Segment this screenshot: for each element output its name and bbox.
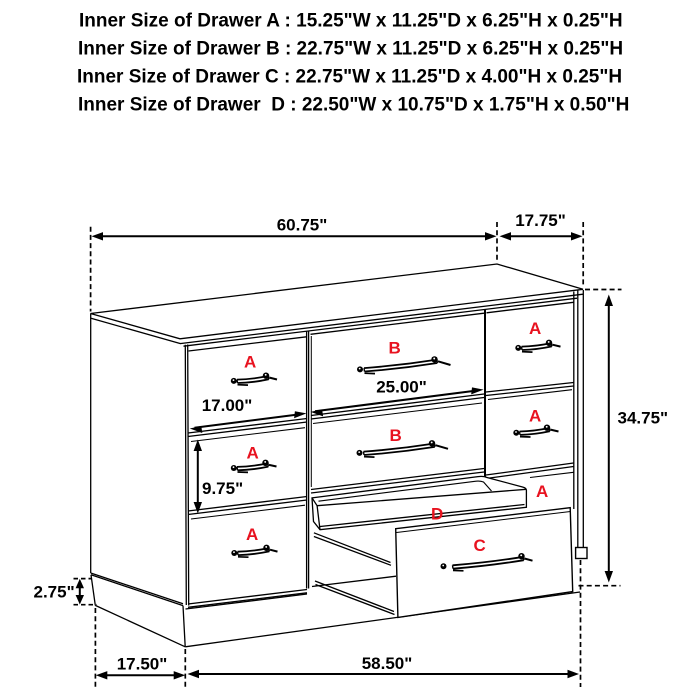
- svg-text:Inner Size of Drawer A : 15.25: Inner Size of Drawer A : 15.25"W x 11.25…: [79, 11, 623, 32]
- svg-text:17.00": 17.00": [202, 396, 253, 415]
- svg-text:A: A: [247, 444, 259, 463]
- svg-text:Inner Size of Drawer D : 22.5: Inner Size of Drawer D : 22.50"W x 10.75…: [78, 95, 629, 116]
- svg-text:A: A: [529, 407, 541, 426]
- svg-text:A: A: [536, 482, 548, 501]
- svg-text:Inner Size of Drawer B : 22.75: Inner Size of Drawer B : 22.75"W x 11.25…: [78, 39, 623, 60]
- svg-text:17.50": 17.50": [117, 655, 168, 674]
- svg-text:A: A: [244, 353, 256, 372]
- svg-text:A: A: [529, 319, 541, 338]
- svg-text:60.75": 60.75": [277, 216, 328, 235]
- svg-text:34.75": 34.75": [618, 409, 669, 428]
- svg-text:58.50": 58.50": [362, 654, 413, 673]
- svg-text:C: C: [474, 536, 486, 555]
- svg-text:25.00": 25.00": [376, 378, 427, 397]
- svg-text:B: B: [390, 426, 402, 445]
- svg-text:9.75": 9.75": [202, 479, 243, 498]
- svg-text:2.75": 2.75": [34, 583, 75, 602]
- svg-text:17.75": 17.75": [515, 211, 566, 230]
- svg-text:B: B: [389, 339, 401, 358]
- svg-text:A: A: [246, 525, 258, 544]
- svg-text:Inner Size of Drawer C : 22.75: Inner Size of Drawer C : 22.75"W x 11.25…: [77, 67, 622, 88]
- svg-text:D: D: [431, 505, 443, 524]
